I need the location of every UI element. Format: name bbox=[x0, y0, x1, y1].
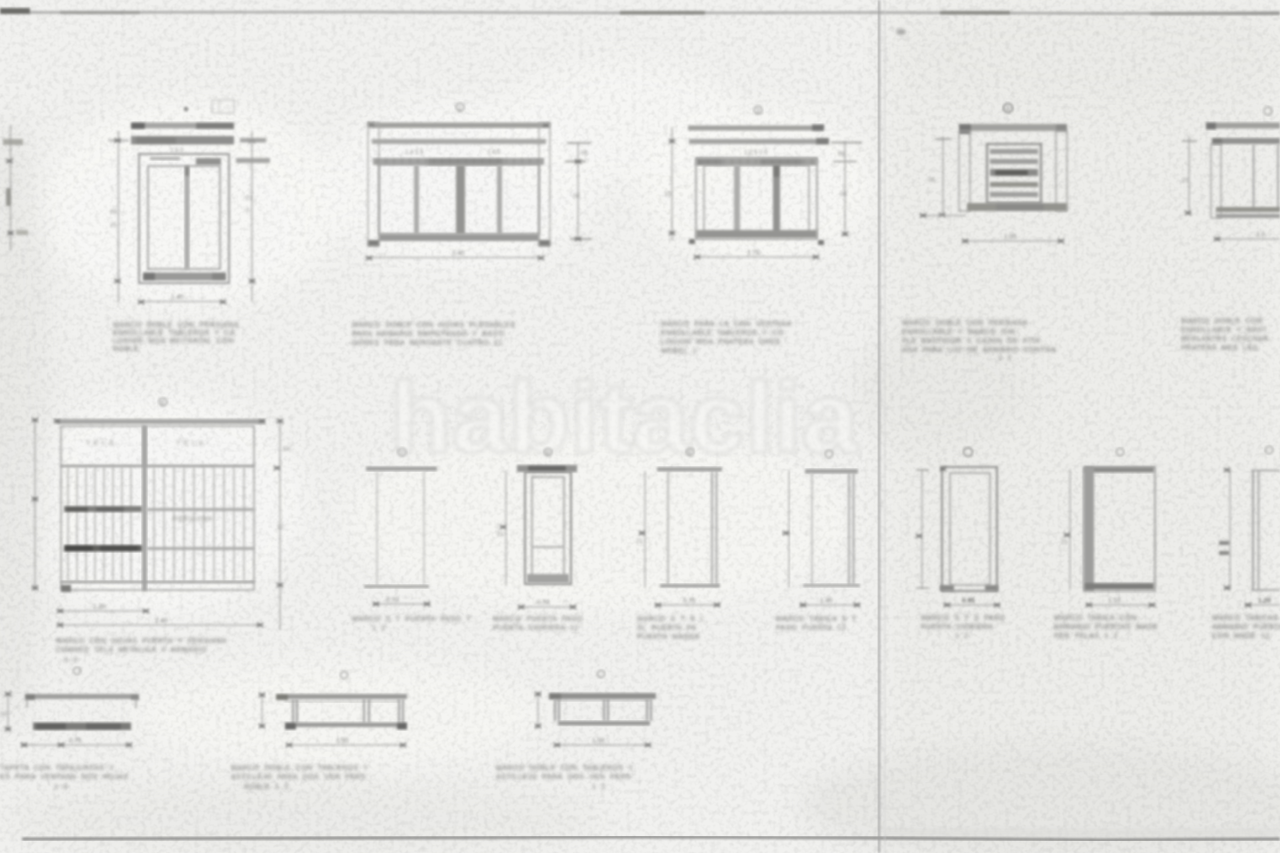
svg-text:1.40: 1.40 bbox=[820, 598, 833, 605]
svg-text:2.40: 2.40 bbox=[155, 618, 168, 625]
svg-text:PER TELAS 1 2: PER TELAS 1 2 bbox=[1054, 633, 1118, 640]
svg-text:1 2: 1 2 bbox=[955, 633, 969, 640]
svg-text:21: 21 bbox=[246, 196, 253, 202]
svg-text:05: 05 bbox=[581, 151, 588, 157]
svg-text:0.95: 0.95 bbox=[962, 598, 975, 605]
svg-text:DORES PARA MONTANTE CUATRO CL: DORES PARA MONTANTE CUATRO CL bbox=[352, 340, 504, 347]
svg-text:PERSIANA: PERSIANA bbox=[173, 516, 213, 523]
svg-text:1.0: 1.0 bbox=[1256, 232, 1265, 239]
svg-text:21: 21 bbox=[636, 539, 643, 545]
svg-text:1 2: 1 2 bbox=[998, 355, 1012, 362]
svg-text:06: 06 bbox=[928, 178, 935, 184]
svg-text:1 4 0: 1 4 0 bbox=[487, 150, 501, 156]
svg-text:MARCO PARA LA CON VENTANA: MARCO PARA LA CON VENTANA bbox=[661, 321, 792, 328]
svg-text:MARCO DOBLE CON TABLEROS Y: MARCO DOBLE CON TABLEROS Y bbox=[496, 765, 633, 772]
svg-text:T E L A: T E L A bbox=[176, 440, 204, 447]
svg-text:1.05: 1.05 bbox=[1004, 234, 1017, 241]
svg-text:LOGIOR MOA PRATERA ORES: LOGIOR MOA PRATERA ORES bbox=[661, 339, 781, 346]
svg-text:MARCO S T S PASO: MARCO S T S PASO bbox=[921, 615, 1005, 622]
svg-text:1 2: 1 2 bbox=[64, 657, 78, 664]
svg-text:PLE BASTIDOR Y CAJON DE FITR: PLE BASTIDOR Y CAJON DE FITR bbox=[902, 338, 1041, 345]
svg-text:ASTILLEJO PARA DOS VEN PERS: ASTILLEJO PARA DOS VEN PERS bbox=[496, 774, 631, 781]
svg-text:12: 12 bbox=[277, 525, 284, 531]
svg-text:1 2: 1 2 bbox=[54, 784, 68, 791]
svg-text:1.10: 1.10 bbox=[1108, 598, 1121, 605]
svg-text:TAPETA CON TAPAJUNTAS Y: TAPETA CON TAPAJUNTAS Y bbox=[0, 765, 115, 772]
svg-text:ASTILLEJO PARA DOS VEN PERS: ASTILLEJO PARA DOS VEN PERS bbox=[231, 774, 366, 781]
svg-text:PASO PUERTA 12: PASO PUERTA 12 bbox=[776, 625, 846, 632]
svg-text:MARCO TABICA CON: MARCO TABICA CON bbox=[1054, 615, 1137, 622]
svg-text:05: 05 bbox=[838, 152, 845, 158]
svg-text:PUERTA MADER: PUERTA MADER bbox=[637, 634, 700, 641]
svg-text:0.75: 0.75 bbox=[69, 738, 82, 745]
svg-text:ENROLLABLE TABLEROS Y CO: ENROLLABLE TABLEROS Y CO bbox=[661, 330, 784, 337]
svg-text:ES PARA VENTANA DOS HOJAS: ES PARA VENTANA DOS HOJAS bbox=[0, 774, 128, 781]
svg-text:MARCO TABICA S T: MARCO TABICA S T bbox=[776, 616, 857, 623]
svg-text:ENROLLABLE TABLEROS Y CA: ENROLLABLE TABLEROS Y CA bbox=[113, 330, 235, 337]
svg-text:MARCO CON HOJAS PUERTA Y PERSI: MARCO CON HOJAS PUERTA Y PERSIANA bbox=[56, 638, 227, 645]
svg-text:1.20: 1.20 bbox=[1258, 598, 1271, 605]
svg-text:1.40: 1.40 bbox=[171, 294, 184, 301]
svg-text:LOGIOR MOA BEITRATAL CON: LOGIOR MOA BEITRATAL CON bbox=[113, 338, 234, 345]
svg-text:1.20: 1.20 bbox=[93, 604, 106, 611]
svg-text:habitaclia: habitaclia bbox=[390, 362, 859, 474]
svg-text:BERLANTES LESCHAR: BERLANTES LESCHAR bbox=[1181, 336, 1269, 343]
svg-text:1.50: 1.50 bbox=[336, 738, 349, 745]
svg-text:1 4 1 5: 1 4 1 5 bbox=[405, 150, 424, 156]
svg-text:1 2 5 1 0: 1 2 5 1 0 bbox=[744, 150, 768, 156]
svg-text:SL PUERTA PA: SL PUERTA PA bbox=[637, 625, 696, 632]
svg-text:MARCO DOBLE CON TABLEROS Y: MARCO DOBLE CON TABLEROS Y bbox=[231, 765, 368, 772]
svg-text:02: 02 bbox=[0, 712, 7, 718]
svg-text:1 2: 1 2 bbox=[592, 784, 606, 791]
svg-text:04: 04 bbox=[283, 447, 290, 453]
svg-text:21: 21 bbox=[1182, 178, 1189, 184]
svg-text:21: 21 bbox=[1061, 540, 1068, 546]
svg-text:MOBEL 1: MOBEL 1 bbox=[661, 348, 697, 355]
svg-text:MARCO DOBLE CON HOJAS PLEGABLE: MARCO DOBLE CON HOJAS PLEGABLES bbox=[352, 322, 515, 329]
svg-text:1.75: 1.75 bbox=[747, 250, 760, 257]
svg-text:0.70: 0.70 bbox=[386, 597, 399, 604]
svg-text:0.70: 0.70 bbox=[537, 600, 550, 607]
svg-text:10: 10 bbox=[664, 192, 671, 198]
svg-text:1 2: 1 2 bbox=[372, 625, 386, 632]
svg-text:ROBLE 1 2: ROBLE 1 2 bbox=[244, 784, 289, 791]
svg-text:08: 08 bbox=[573, 194, 580, 200]
svg-text:09: 09 bbox=[110, 210, 117, 216]
svg-text:ARMARIO PUERTAS MADE: ARMARIO PUERTAS MADE bbox=[1054, 624, 1158, 631]
svg-text:21: 21 bbox=[110, 223, 117, 229]
svg-text:MARCO DOBLE CON: MARCO DOBLE CON bbox=[1181, 318, 1263, 325]
svg-text:MARCO DOBLE CON PERSIANA: MARCO DOBLE CON PERSIANA bbox=[113, 322, 239, 329]
svg-text:PRATERA MES LES: PRATERA MES LES bbox=[1181, 345, 1258, 352]
svg-text:ADA PARA LUZ DE ARMARIO CONTRA: ADA PARA LUZ DE ARMARIO CONTRA bbox=[902, 347, 1056, 354]
svg-text:ARMARIO PUERTA: ARMARIO PUERTA bbox=[1212, 624, 1280, 631]
svg-text:2.40: 2.40 bbox=[452, 250, 465, 257]
svg-text:21: 21 bbox=[497, 532, 504, 538]
svg-text:PUERTA VIDRIERA 12: PUERTA VIDRIERA 12 bbox=[493, 625, 579, 632]
svg-text:T E L A: T E L A bbox=[86, 440, 114, 447]
svg-text:0.75: 0.75 bbox=[683, 598, 696, 605]
svg-text:MARCO PUERTA PASO: MARCO PUERTA PASO bbox=[493, 616, 583, 623]
svg-text:PUERTA VIDRIERA: PUERTA VIDRIERA bbox=[921, 624, 993, 631]
svg-text:MARCO S T PUERTA PASO T: MARCO S T PUERTA PASO T bbox=[352, 616, 471, 623]
svg-text:PARA ARMARIO EMPOTRADO Y BASTI: PARA ARMARIO EMPOTRADO Y BASTI bbox=[352, 331, 505, 338]
svg-text:ROBLE: ROBLE bbox=[113, 346, 139, 353]
svg-text:ENROLLABLE Y MARCO SIM: ENROLLABLE Y MARCO SIM bbox=[902, 329, 1015, 336]
svg-text:MARCO DOBLE CON PERSIANA: MARCO DOBLE CON PERSIANA bbox=[902, 320, 1028, 327]
svg-text:CON MADE 12: CON MADE 12 bbox=[1212, 633, 1270, 640]
svg-text:08: 08 bbox=[840, 192, 847, 198]
svg-text:MARCO TABICAS: MARCO TABICAS bbox=[1212, 615, 1278, 622]
svg-text:CORRED TELA METALICA Y ARMARIO: CORRED TELA METALICA Y ARMARIO bbox=[56, 647, 207, 654]
svg-text:ENROLLABLE Y BAST: ENROLLABLE Y BAST bbox=[1181, 327, 1267, 334]
svg-text:1.00: 1.00 bbox=[592, 738, 605, 745]
svg-text:MARCO S T S L: MARCO S T S L bbox=[637, 616, 705, 623]
